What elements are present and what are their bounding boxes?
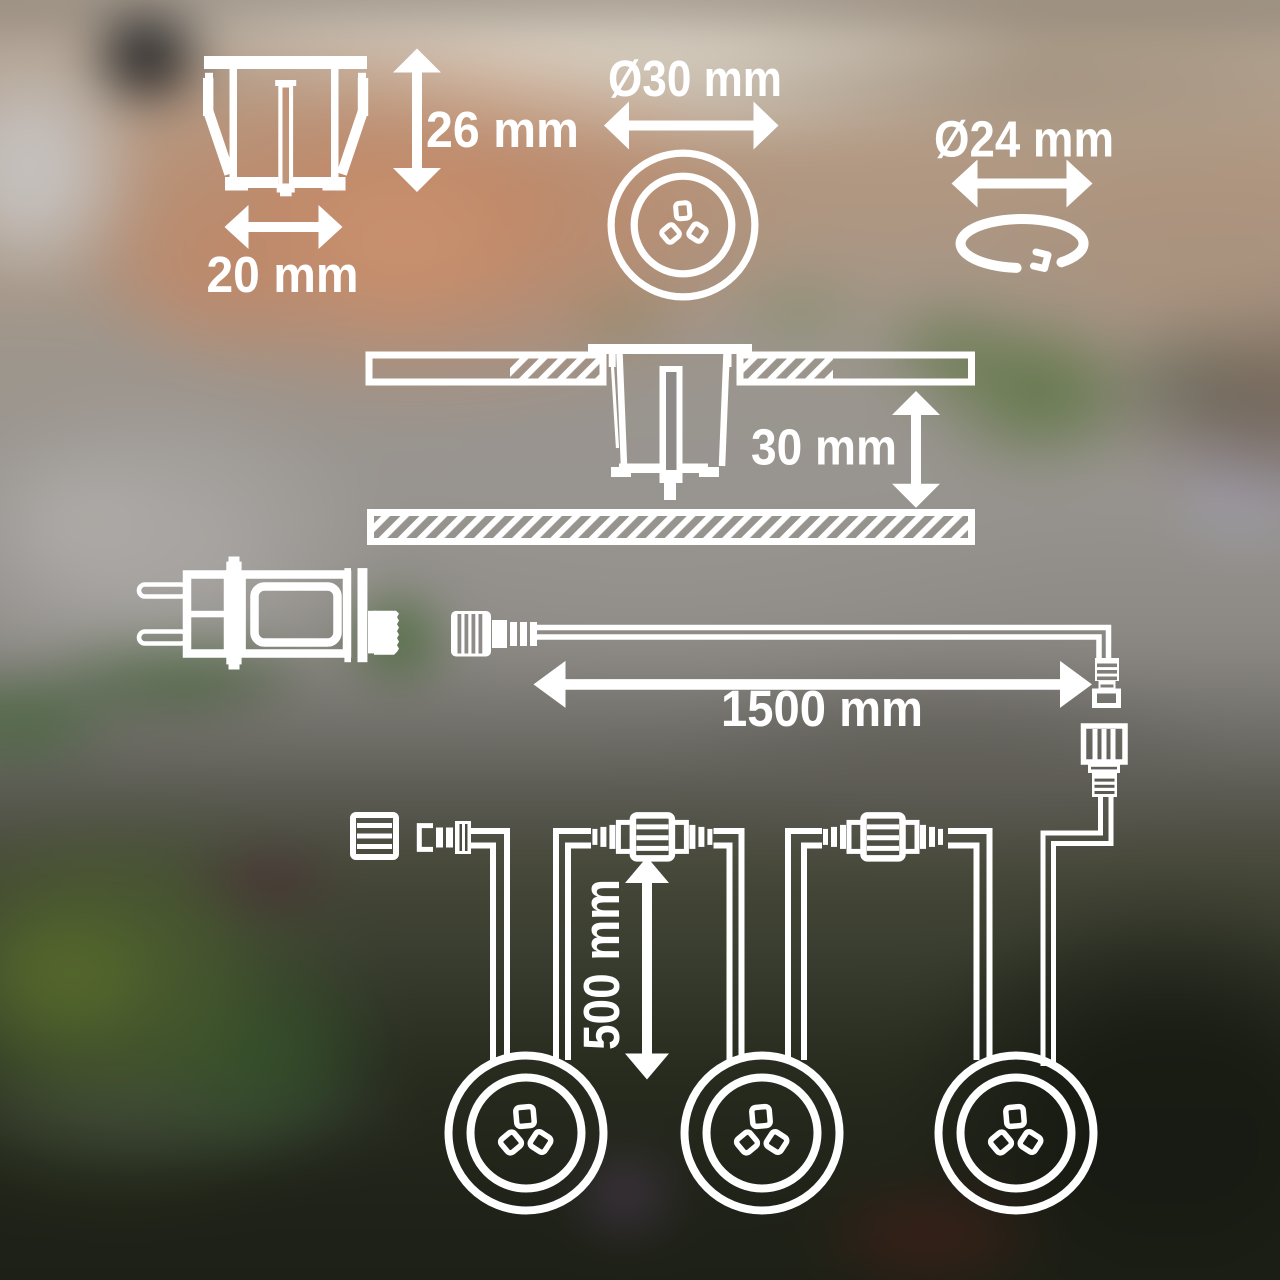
svg-text:500 mm: 500 mm: [573, 879, 630, 1050]
svg-text:30 mm: 30 mm: [751, 419, 897, 476]
svg-text:20 mm: 20 mm: [207, 246, 359, 303]
svg-text:Ø30 mm: Ø30 mm: [608, 50, 782, 107]
svg-text:1500 mm: 1500 mm: [721, 680, 923, 737]
svg-text:26 mm: 26 mm: [426, 101, 579, 158]
svg-text:Ø24 mm: Ø24 mm: [934, 111, 1114, 168]
